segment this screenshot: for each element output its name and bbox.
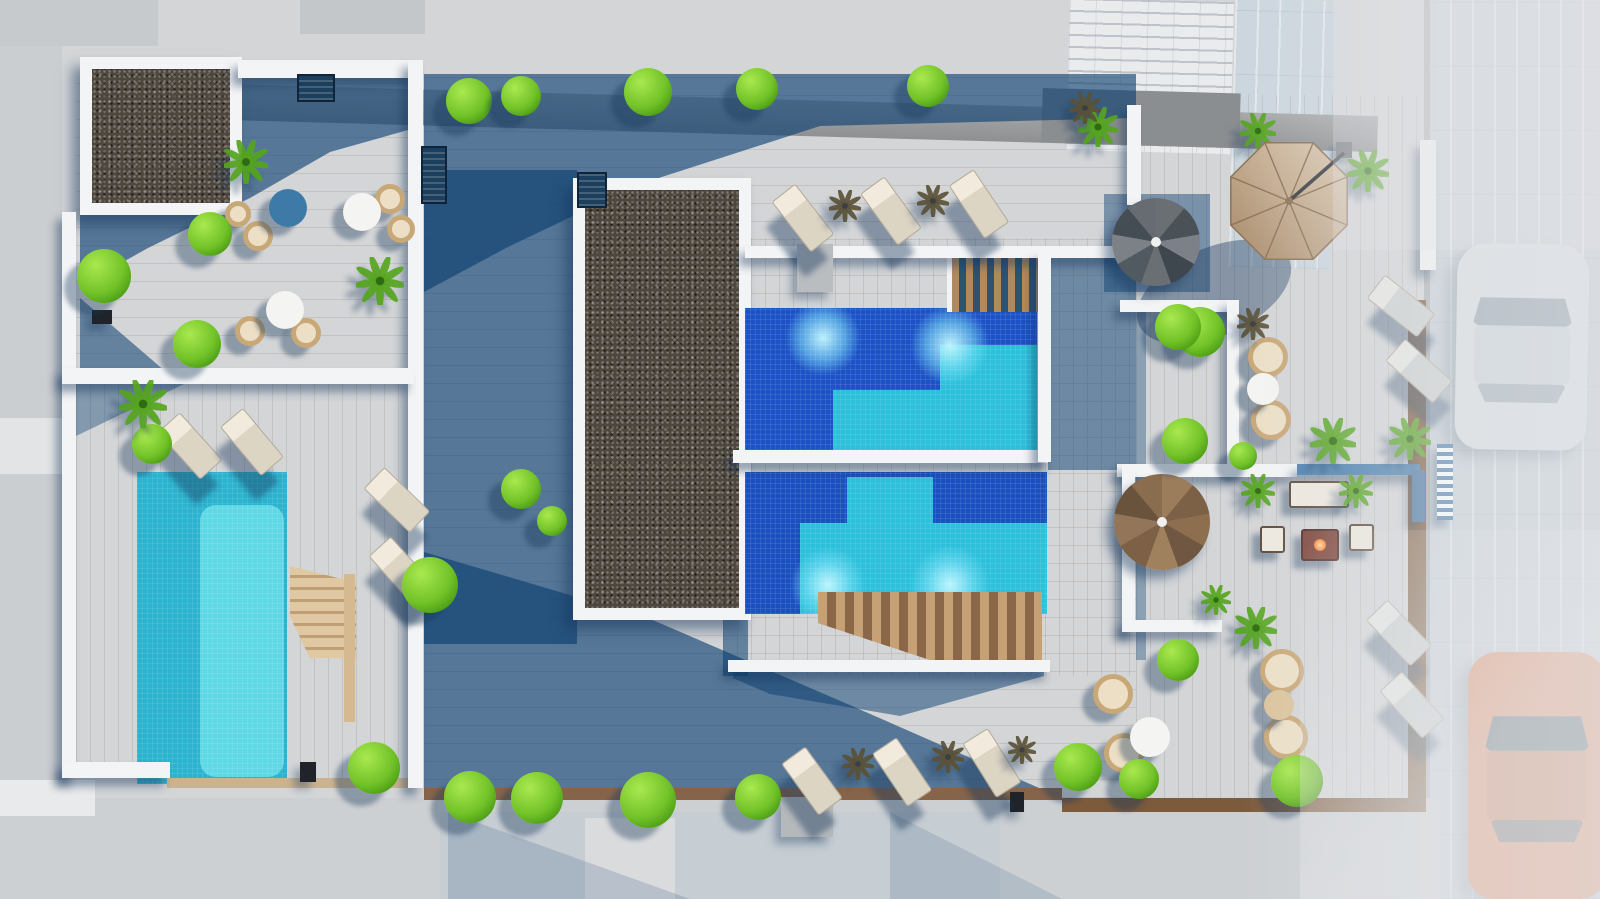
bush-tree <box>77 249 131 303</box>
ac-unit-block <box>797 244 833 292</box>
round-table-white <box>1247 373 1279 405</box>
bush-tree <box>1162 418 1208 464</box>
palm-tree <box>1235 607 1277 649</box>
speaker-bottom-right <box>1010 792 1024 812</box>
spiral-staircase-upper <box>1112 198 1200 286</box>
cantilever-parasol <box>1220 132 1358 270</box>
wall-left-outer <box>62 212 76 778</box>
bush-tree <box>907 65 949 107</box>
fire-pit-table <box>1301 529 1339 561</box>
palm-tree <box>224 140 268 184</box>
bush-tree <box>501 469 541 509</box>
roof-hatch-top <box>297 74 335 102</box>
round-table-white <box>343 193 381 231</box>
roof-hatch-center <box>577 172 607 208</box>
parked-car-white <box>1454 243 1590 451</box>
bush-tree <box>624 68 672 116</box>
private-pool-left-tiles <box>137 472 287 784</box>
potted-palm <box>842 748 874 780</box>
deck-edge-right <box>1062 798 1426 812</box>
potted-palm <box>932 741 964 773</box>
parked-car-orange-roof <box>1487 751 1586 820</box>
spiral-staircase-lower-center-pole <box>1157 517 1167 527</box>
bush-tree <box>736 68 778 110</box>
bush-tree <box>188 212 232 256</box>
bush-tree <box>1054 743 1102 791</box>
bush-tree <box>402 557 458 613</box>
wall-platform-right <box>1038 252 1051 462</box>
speaker-left-wall <box>92 310 112 324</box>
hanging-chair <box>1260 649 1304 693</box>
street-left-crosswalk <box>0 418 62 474</box>
wall-right-parapet <box>1420 140 1436 270</box>
gravel-bed-top-left-stones <box>92 69 230 203</box>
street-top-left-block <box>0 0 158 46</box>
bush-tree <box>1229 442 1257 470</box>
wicker-chair <box>387 215 415 243</box>
hanging-chair <box>1264 715 1308 759</box>
bush-tree <box>537 506 567 536</box>
round-table-white <box>1130 717 1170 757</box>
shared-pool-upper-tiles <box>745 308 1037 455</box>
wall-left-pool-top <box>62 368 414 384</box>
parked-car-white-roof <box>1474 326 1570 385</box>
parasol-canopy <box>1220 132 1358 270</box>
wicker-chair <box>1248 337 1288 377</box>
palm-tree <box>356 257 404 305</box>
gravel-bed-center <box>573 178 751 620</box>
wall-left-pool-bottom <box>62 762 170 778</box>
palm-tree <box>1339 474 1373 508</box>
private-pool-left <box>137 472 287 784</box>
palm-tree <box>1310 418 1356 464</box>
street-bottom-blue-patch <box>440 812 1000 899</box>
palm-tree <box>1201 585 1231 615</box>
bush-tree <box>446 78 492 124</box>
palm-tree <box>1241 474 1275 508</box>
spiral-staircase-upper-center-pole <box>1151 237 1161 247</box>
speaker-bottom-center <box>300 762 316 782</box>
curb-bottom-left <box>0 780 95 816</box>
outdoor-armchair <box>1349 524 1374 551</box>
bush-tree <box>1155 304 1201 350</box>
bush-tree <box>173 320 221 368</box>
stairs-upper-pool-access-rail <box>947 252 952 312</box>
shared-pool-upper <box>745 308 1037 455</box>
stairs-divider-wall <box>344 574 355 722</box>
potted-palm <box>917 185 949 217</box>
gravel-bed-top-left <box>80 57 242 215</box>
rooftop-aerial-render <box>0 0 1600 899</box>
wicker-chair <box>1251 400 1291 440</box>
potted-palm <box>829 190 861 222</box>
parked-car-white-rear-window <box>1476 383 1566 403</box>
potted-palm <box>1237 308 1269 340</box>
stairs-upper-pool-access <box>952 252 1044 312</box>
blue-glass-panel <box>1412 470 1425 522</box>
palm-tree <box>1389 418 1431 460</box>
palm-tree <box>119 380 167 428</box>
potted-palm <box>1008 736 1036 764</box>
street-bottom-light-band <box>585 818 675 899</box>
vent-striped-sidewalk <box>1437 444 1453 520</box>
bush-tree <box>132 424 172 464</box>
round-table-tan <box>1264 690 1294 720</box>
wicker-chair <box>243 221 273 251</box>
wall-pools-divider <box>733 450 1048 463</box>
parked-car-orange <box>1468 652 1600 899</box>
bush-tree <box>444 771 496 823</box>
parked-car-orange-windshield <box>1485 716 1590 751</box>
round-table-blue <box>269 189 307 227</box>
gravel-bed-center-stones <box>585 190 739 608</box>
fire-flame <box>1314 539 1326 551</box>
bush-tree <box>1157 639 1199 681</box>
bush-tree <box>1119 759 1159 799</box>
spiral-staircase-lower <box>1114 474 1210 570</box>
parked-car-white-windshield <box>1472 297 1573 328</box>
wall-fire-lounge-bottom <box>1122 620 1222 632</box>
street-top-block <box>300 0 425 34</box>
potted-palm <box>1069 92 1101 124</box>
bush-tree <box>620 772 676 828</box>
outdoor-armchair <box>1260 526 1285 553</box>
wall-upper-right-v <box>1127 105 1141 205</box>
round-table-white <box>266 291 304 329</box>
wall-platform-bottom <box>728 660 1050 672</box>
wicker-chair <box>235 316 265 346</box>
bush-tree <box>511 772 563 824</box>
wicker-chair <box>1093 674 1133 714</box>
roof-hatch-left-wall <box>421 146 447 204</box>
bush-tree <box>1271 755 1323 807</box>
bush-tree <box>501 76 541 116</box>
bush-tree <box>735 774 781 820</box>
parked-car-orange-rear-window <box>1490 820 1584 842</box>
bush-tree <box>348 742 400 794</box>
